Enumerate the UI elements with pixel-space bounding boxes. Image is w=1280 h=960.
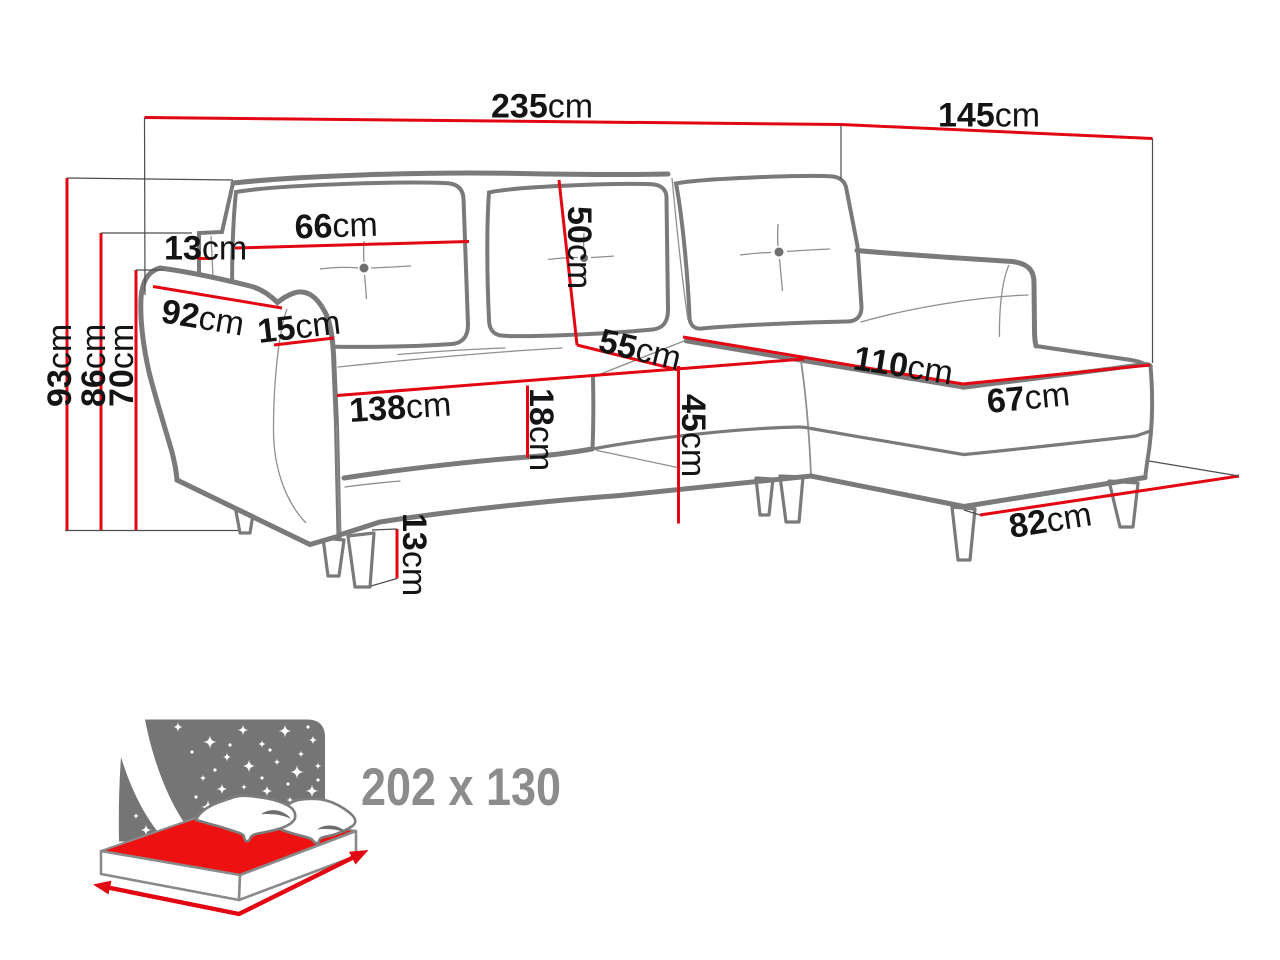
svg-text:145cm: 145cm — [938, 97, 1040, 135]
svg-text:18cm: 18cm — [522, 388, 560, 471]
svg-text:45cm: 45cm — [674, 394, 712, 477]
svg-text:235cm: 235cm — [491, 88, 593, 126]
svg-text:93cm: 93cm — [41, 324, 79, 407]
svg-text:13cm: 13cm — [164, 230, 247, 268]
svg-text:67cm: 67cm — [985, 375, 1071, 421]
svg-text:202 x 130: 202 x 130 — [361, 758, 561, 817]
svg-text:13cm: 13cm — [395, 513, 433, 596]
svg-text:138cm: 138cm — [348, 385, 452, 430]
svg-text:50cm: 50cm — [560, 206, 598, 289]
svg-text:70cm: 70cm — [103, 324, 141, 407]
svg-text:66cm: 66cm — [294, 206, 378, 247]
